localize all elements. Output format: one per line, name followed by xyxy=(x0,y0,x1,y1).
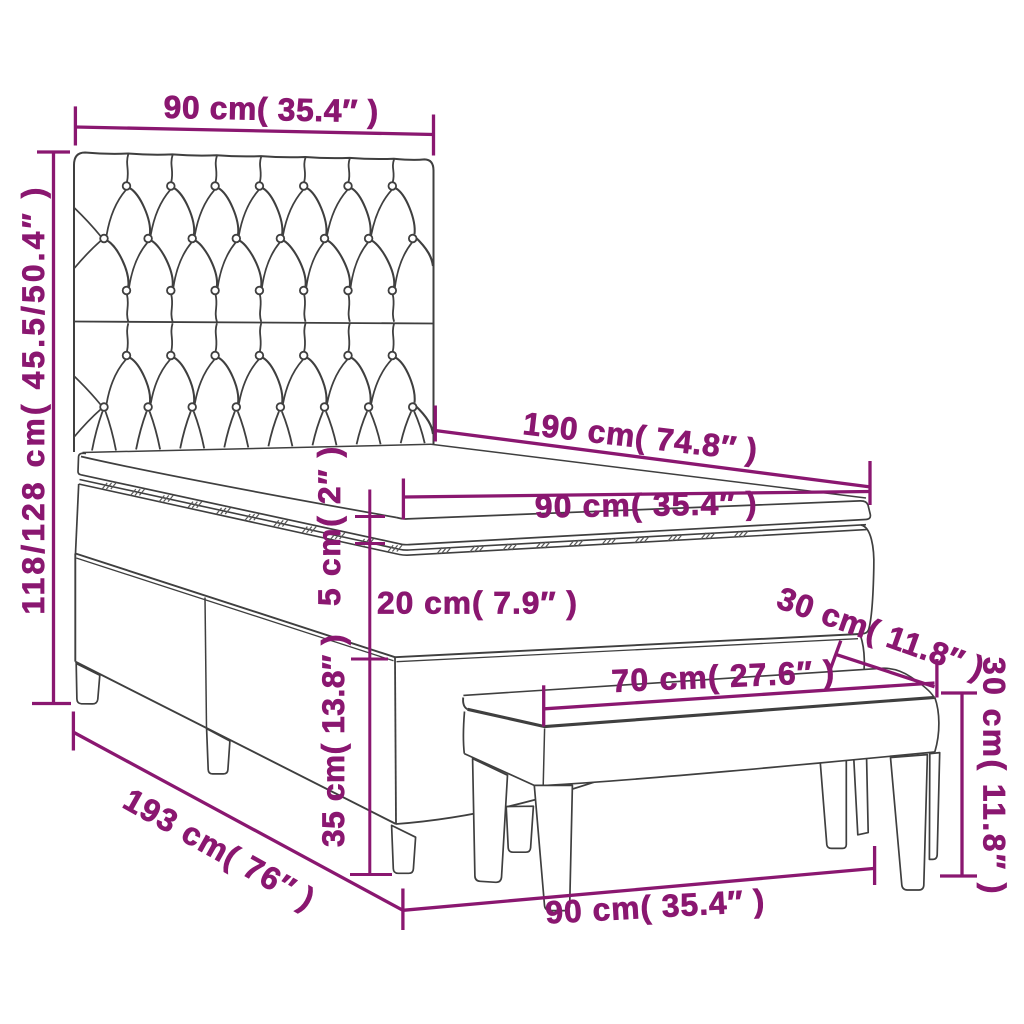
svg-text:90 cm( 35.4″ ): 90 cm( 35.4″ ) xyxy=(535,485,758,524)
svg-text:118/128 cm( 45.5/50.4″ ): 118/128 cm( 45.5/50.4″ ) xyxy=(15,184,51,614)
svg-text:20 cm( 7.9″ ): 20 cm( 7.9″ ) xyxy=(377,585,578,621)
svg-text:5 cm( 2″ ): 5 cm( 2″ ) xyxy=(311,445,347,606)
svg-text:90 cm( 35.4″ ): 90 cm( 35.4″ ) xyxy=(163,89,379,129)
svg-text:35 cm( 13.8″ ): 35 cm( 13.8″ ) xyxy=(315,634,351,847)
svg-text:30 cm( 11.8″ ): 30 cm( 11.8″ ) xyxy=(977,657,1013,896)
